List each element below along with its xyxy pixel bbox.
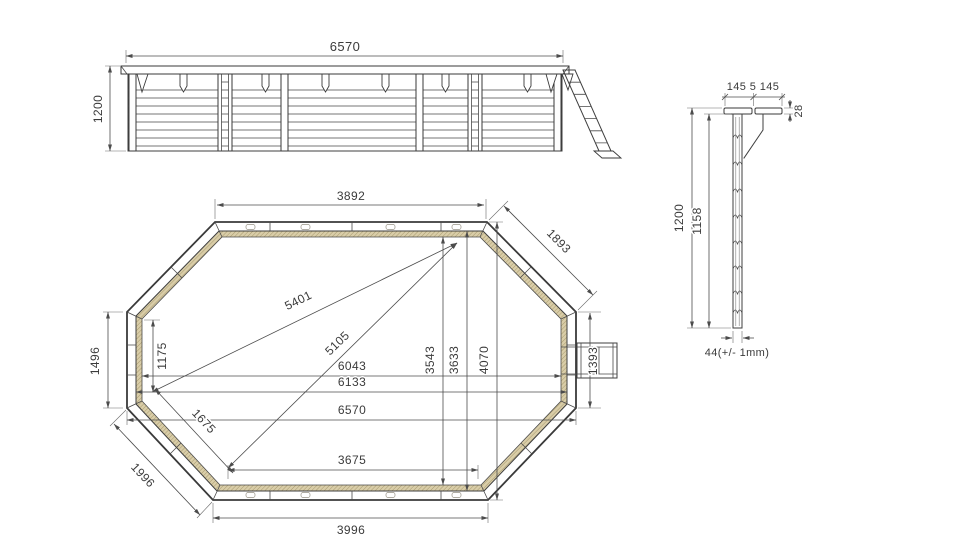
dim-label: 1675 — [189, 406, 219, 436]
dim-label: 6133 — [338, 375, 366, 389]
dim-plan-height-4070: 4070 — [477, 222, 503, 500]
top-rail — [121, 66, 569, 74]
dim-label: 1175 — [155, 342, 169, 369]
dim-detail-plank-thickness: 44(+/- 1mm) — [705, 331, 770, 359]
dim-label: 5105 — [322, 328, 352, 358]
dim-label: 1393 — [586, 347, 600, 375]
dim-label: 1893 — [544, 226, 574, 256]
dim-label: 3892 — [337, 189, 365, 203]
dim-plan-left-edge: 1496 — [88, 312, 123, 408]
dim-elevation-width: 6570 — [126, 39, 563, 63]
support-bracket — [744, 114, 763, 158]
plan-view: 3892 1893 5401 5105 6043 6133 — [88, 189, 617, 537]
dim-label: 5401 — [282, 288, 314, 313]
wall-posts — [129, 74, 561, 151]
dim-plan-width-6133: 6133 — [136, 375, 567, 392]
dim-label: 3543 — [423, 346, 437, 374]
dim-label: 6043 — [338, 359, 366, 373]
wall-planks — [128, 90, 562, 146]
detail-rail-left — [724, 108, 752, 114]
dim-label: 28 — [793, 104, 805, 117]
dim-plan-bottom-inner: 3675 — [228, 453, 478, 479]
dim-elevation-height: 1200 — [91, 66, 126, 151]
elevation-view: 6570 1200 — [91, 39, 621, 158]
detail-rail-right — [755, 108, 782, 114]
dim-plan-left-inner: 1175 — [144, 320, 169, 392]
dim-plan-height-3633: 3633 — [447, 231, 467, 491]
dim-detail-height-wall: 1158 — [690, 114, 731, 328]
dim-label: 44(+/- 1mm) — [705, 347, 770, 359]
dim-label: 1158 — [690, 207, 704, 234]
dim-plan-height-3543: 3543 — [423, 237, 443, 485]
dim-label: 3675 — [338, 453, 366, 467]
dim-label: 3996 — [337, 523, 365, 537]
dim-label: 6570 — [338, 403, 366, 417]
dim-plan-right-edge: 1393 — [578, 312, 601, 408]
wall-detail-view: 145 5 145 28 1200 1158 44(+/- 1mm) — [672, 81, 805, 359]
corner-brackets — [137, 74, 573, 92]
dim-label: 1200 — [672, 204, 686, 232]
pool-technical-drawing: 6570 1200 — [0, 0, 970, 547]
dim-plan-bottom-edge: 3996 — [213, 503, 488, 537]
dim-plan-width-6043: 6043 — [142, 359, 561, 376]
tongue-groove-joints — [733, 135, 742, 313]
pool-ladder — [563, 70, 621, 158]
drawing-canvas: 6570 1200 — [0, 0, 970, 547]
dim-detail-rails: 145 5 145 — [722, 81, 785, 106]
dim-plan-top-edge: 3892 — [215, 189, 486, 219]
dim-label: 6570 — [330, 39, 361, 54]
detail-wall — [733, 114, 742, 328]
dim-label: 1996 — [128, 460, 158, 490]
pool-wall — [128, 74, 562, 151]
dim-label: 4070 — [477, 346, 491, 374]
dim-label: 145 5 145 — [727, 81, 780, 93]
dim-label: 1496 — [88, 347, 102, 375]
dim-detail-rail-thickness: 28 — [784, 100, 805, 122]
dim-label: 1200 — [91, 95, 105, 123]
dim-plan-diagonal-5401: 5401 — [152, 243, 457, 392]
dim-label: 3633 — [447, 346, 461, 374]
